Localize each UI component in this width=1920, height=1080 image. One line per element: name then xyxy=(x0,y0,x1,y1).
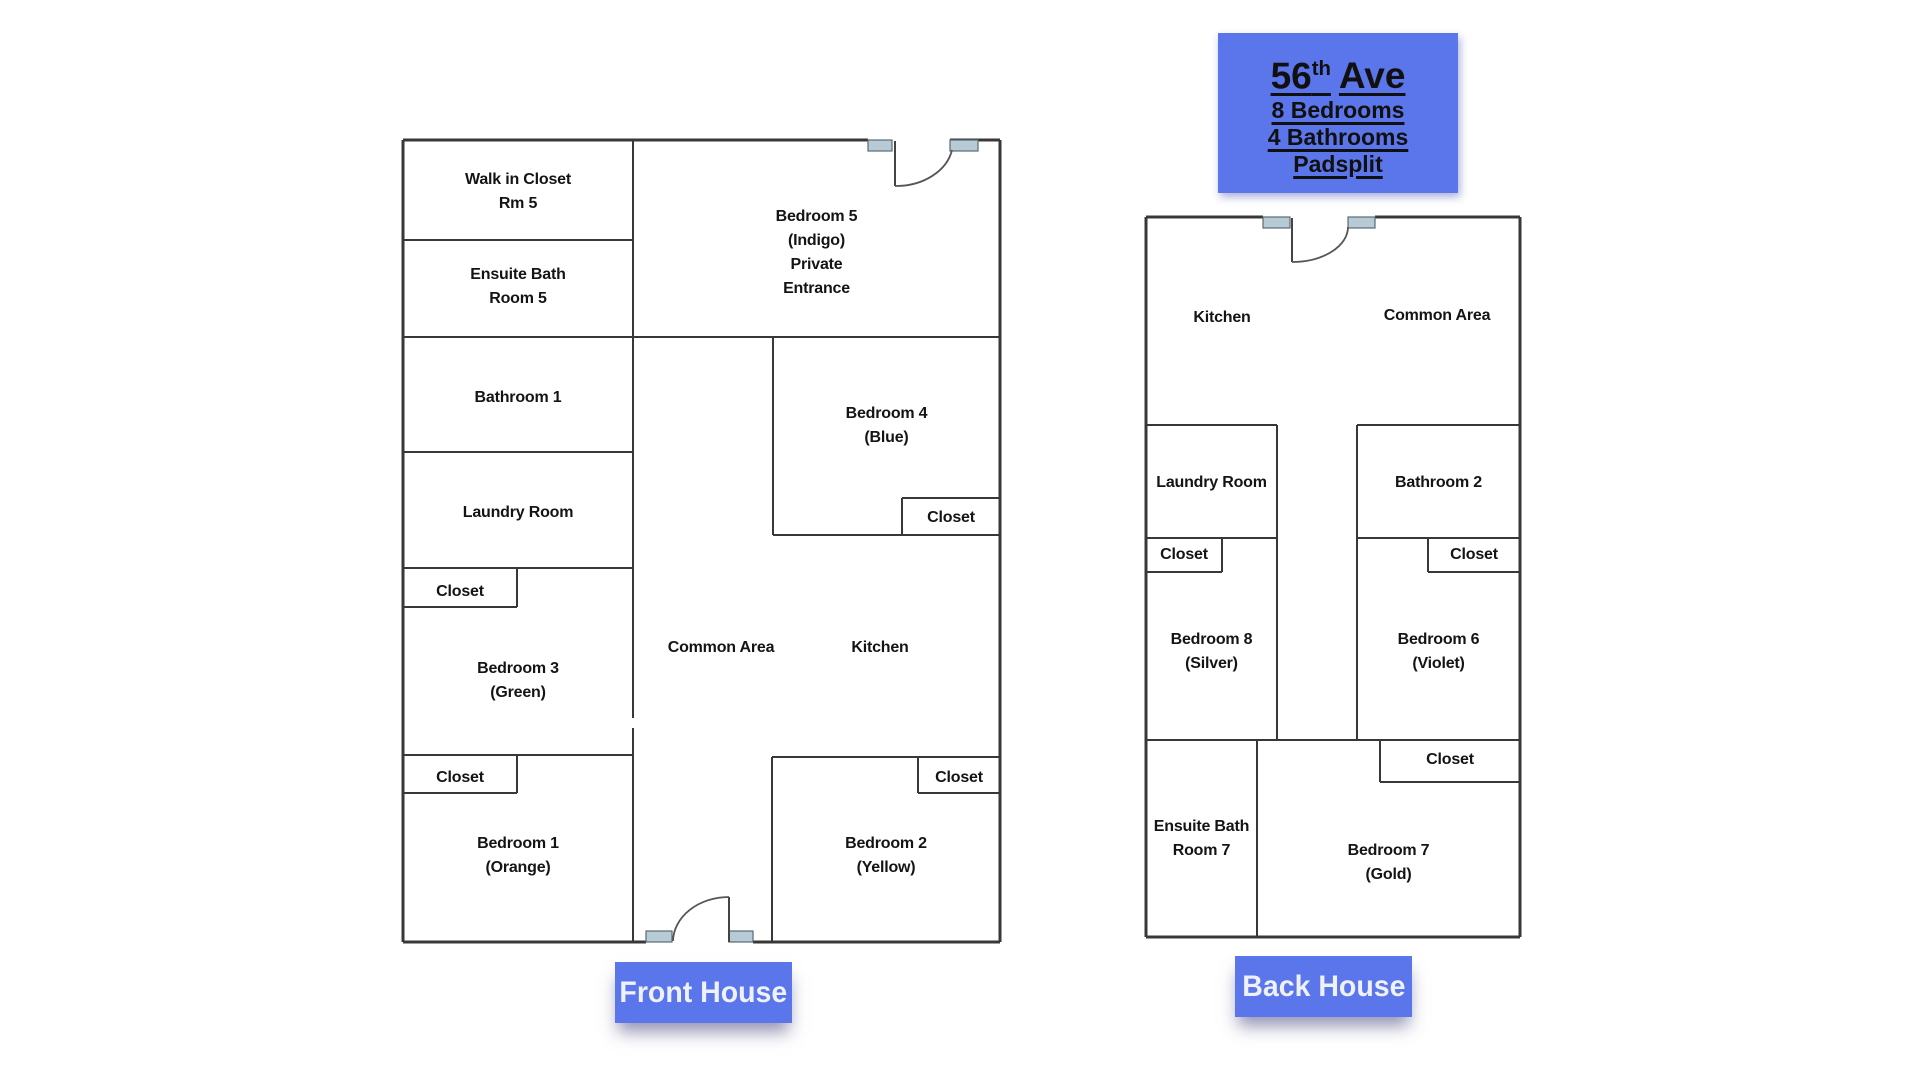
room-label-bedroom-7: Bedroom 7 (Gold) xyxy=(1257,839,1520,887)
room-label-closet-bedroom3: Closet xyxy=(403,580,517,604)
floor-plan-walls xyxy=(0,0,1920,1080)
room-label-kitchen-back: Kitchen xyxy=(1132,306,1312,330)
room-label-laundry-room-back: Laundry Room xyxy=(1146,471,1277,495)
title-bedroom-count: 8 Bedrooms xyxy=(1218,97,1458,123)
title-box: 56thAve 8 Bedrooms 4 Bathrooms Padsplit xyxy=(1218,33,1458,193)
room-label-bathroom-1: Bathroom 1 xyxy=(403,386,633,410)
room-label-closet-bedroom6: Closet xyxy=(1428,543,1520,567)
back-house-tag-label: Back House xyxy=(1242,970,1405,1004)
room-label-common-area-front: Common Area xyxy=(641,636,801,660)
room-label-ensuite-bath-room7: Ensuite Bath Room 7 xyxy=(1146,815,1257,863)
room-label-closet-bedroom2: Closet xyxy=(918,766,1000,790)
title-bathroom-count: 4 Bathrooms xyxy=(1218,124,1458,150)
room-label-bedroom-1: Bedroom 1 (Orange) xyxy=(403,832,633,880)
title-street-address: 56thAve xyxy=(1218,49,1458,96)
back-house-tag: Back House xyxy=(1235,956,1412,1017)
room-label-closet-bedroom4: Closet xyxy=(902,506,1000,530)
back-house-main-door-icon xyxy=(1263,217,1375,262)
room-label-closet-bedroom8: Closet xyxy=(1146,543,1222,567)
front-house-tag-label: Front House xyxy=(620,976,788,1010)
floor-plan-canvas: Walk in Closet Rm 5 Ensuite Bath Room 5 … xyxy=(0,0,1920,1080)
bedroom5-private-entrance-door-icon xyxy=(868,140,978,186)
front-house-tag: Front House xyxy=(615,962,792,1023)
room-label-bedroom-2: Bedroom 2 (Yellow) xyxy=(772,832,1000,880)
room-label-walk-in-closet-rm5: Walk in Closet Rm 5 xyxy=(403,168,633,216)
title-padsplit: Padsplit xyxy=(1218,151,1458,177)
room-label-ensuite-bath-room5: Ensuite Bath Room 5 xyxy=(403,263,633,311)
room-label-closet-bedroom7: Closet xyxy=(1380,748,1520,772)
room-label-bedroom-5: Bedroom 5 (Indigo) Private Entrance xyxy=(633,205,1000,301)
room-label-kitchen-front: Kitchen xyxy=(800,636,960,660)
front-house-main-door-icon xyxy=(646,897,753,942)
room-label-laundry-room-front: Laundry Room xyxy=(403,501,633,525)
room-label-bedroom-6: Bedroom 6 (Violet) xyxy=(1357,628,1520,676)
room-label-bedroom-3: Bedroom 3 (Green) xyxy=(403,657,633,705)
room-label-closet-bedroom1: Closet xyxy=(403,766,517,790)
room-label-bathroom-2: Bathroom 2 xyxy=(1357,471,1520,495)
room-label-common-area-back: Common Area xyxy=(1337,304,1537,328)
room-label-bedroom-8: Bedroom 8 (Silver) xyxy=(1146,628,1277,676)
room-label-bedroom-4: Bedroom 4 (Blue) xyxy=(773,402,1000,450)
